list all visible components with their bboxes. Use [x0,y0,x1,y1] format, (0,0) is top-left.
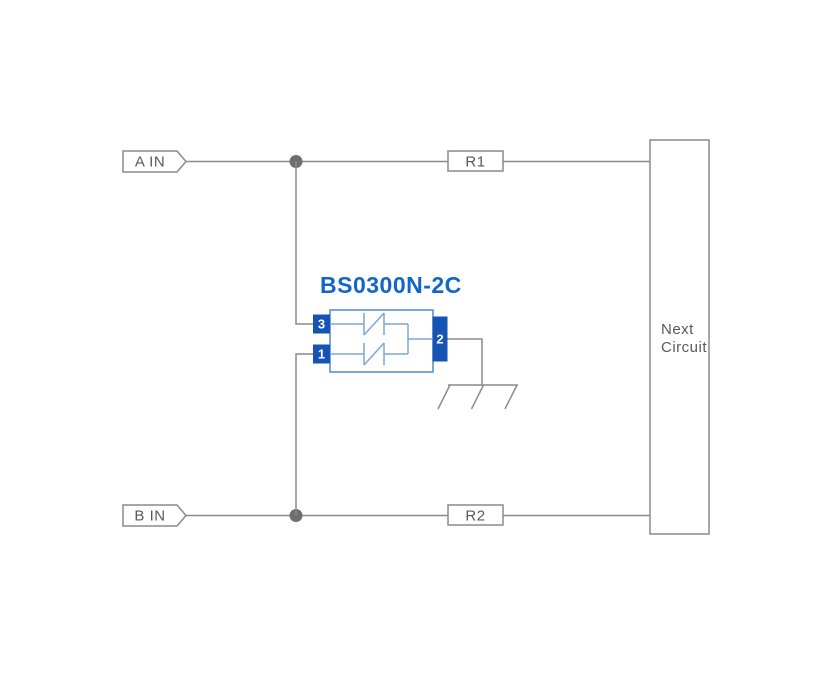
ground-hatch-2 [472,385,484,409]
pin-1-label: 1 [318,347,325,362]
component-label: BS0300N-2C [320,272,462,298]
next-circuit-label-line1: Next [661,321,694,338]
pin-3-label: 3 [318,317,325,332]
circuit-diagram-canvas: A IN R1 B IN R2 Next Circuit BS0300N-2C [0,0,832,675]
next-circuit-label-line2: Circuit [661,339,707,356]
input-b-label: B IN [134,508,165,525]
resistor-r1-label: R1 [465,154,485,171]
wire-pin2-to-ground [448,339,483,385]
wire-b-branch-to-pin1 [296,354,313,516]
input-a-label: A IN [135,154,165,171]
pin-2-label: 2 [436,332,443,347]
ground-hatch-1 [438,385,450,409]
ground-symbol [438,385,518,409]
circuit-diagram-page: A IN R1 B IN R2 Next Circuit BS0300N-2C [0,0,832,675]
ground-hatch-3 [505,385,517,409]
component-body [330,310,433,372]
resistor-r2-label: R2 [465,508,485,525]
wire-a-branch-to-pin3 [296,162,313,325]
